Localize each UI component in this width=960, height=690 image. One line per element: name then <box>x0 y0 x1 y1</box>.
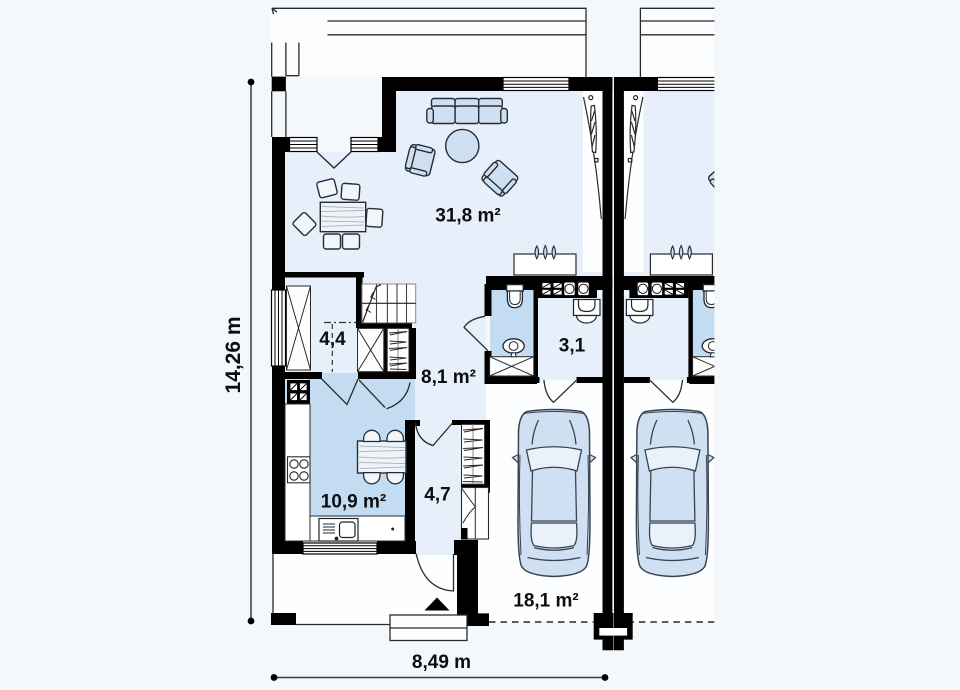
svg-text:4,7: 4,7 <box>424 485 450 506</box>
svg-text:31,8 m²: 31,8 m² <box>435 206 500 227</box>
svg-text:4,4: 4,4 <box>319 329 346 350</box>
svg-text:8,49 m: 8,49 m <box>412 652 471 673</box>
svg-text:14,26 m: 14,26 m <box>222 316 245 393</box>
svg-text:18,1 m²: 18,1 m² <box>513 591 578 612</box>
svg-text:3,1: 3,1 <box>559 336 586 357</box>
svg-text:10,9 m²: 10,9 m² <box>321 492 386 513</box>
svg-text:8,1 m²: 8,1 m² <box>421 367 476 388</box>
